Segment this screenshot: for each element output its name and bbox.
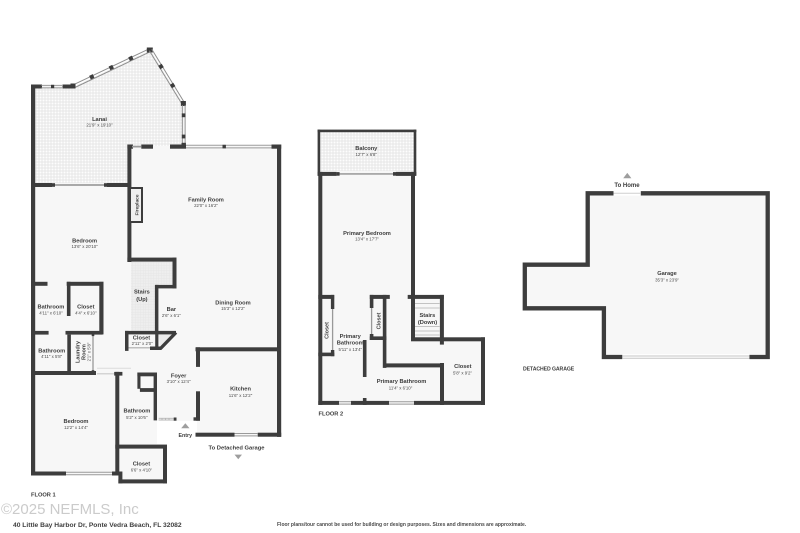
svg-text:21'9" x 19'10": 21'9" x 19'10"	[86, 123, 113, 128]
svg-text:4'11" x 6'10": 4'11" x 6'10"	[39, 310, 63, 315]
svg-text:Kitchen: Kitchen	[230, 387, 251, 393]
svg-text:15'3" x 12'2": 15'3" x 12'2"	[221, 306, 245, 311]
svg-text:FLOOR 2: FLOOR 2	[319, 412, 344, 418]
svg-text:To Detached Garage: To Detached Garage	[209, 446, 266, 452]
svg-text:Closet: Closet	[454, 364, 471, 370]
svg-text:6'6" x 4'10": 6'6" x 4'10"	[131, 468, 153, 473]
svg-text:Primary: Primary	[340, 334, 362, 340]
svg-text:11'6" x 12'2": 11'6" x 12'2"	[229, 393, 253, 398]
svg-text:Stairs: Stairs	[419, 313, 435, 319]
svg-text:5'11" x 13'4": 5'11" x 13'4"	[339, 347, 363, 352]
svg-text:Stairs: Stairs	[134, 290, 150, 296]
svg-text:2'6" x 6'1": 2'6" x 6'1"	[162, 313, 181, 318]
svg-text:13'4" x 17'7": 13'4" x 17'7"	[355, 237, 379, 242]
svg-text:(Up): (Up)	[136, 297, 147, 303]
svg-text:(Down): (Down)	[418, 320, 437, 326]
svg-text:5'2" x 10'6": 5'2" x 10'6"	[126, 415, 148, 420]
svg-text:Fireplace: Fireplace	[134, 194, 140, 215]
svg-text:12'2" x 14'4": 12'2" x 14'4"	[64, 425, 88, 430]
svg-text:Closet: Closet	[133, 462, 150, 468]
svg-text:Closet: Closet	[325, 322, 331, 339]
svg-text:Floor plans/tour cannot be use: Floor plans/tour cannot be used for buil…	[277, 522, 527, 528]
svg-text:Closet: Closet	[376, 312, 382, 329]
svg-text:2'11" x 2'0": 2'11" x 2'0"	[132, 341, 154, 346]
svg-text:2'1" x 5'8": 2'1" x 5'8"	[87, 342, 92, 361]
svg-text:Primary Bathroom: Primary Bathroom	[377, 379, 427, 385]
svg-text:40 Little Bay Harbor Dr, Ponte: 40 Little Bay Harbor Dr, Ponte Vedra Bea…	[13, 522, 182, 529]
svg-text:4'4" x 6'10": 4'4" x 6'10"	[75, 310, 97, 315]
svg-text:5'8" x 9'2": 5'8" x 9'2"	[453, 370, 472, 375]
svg-text:22'0" x 16'2": 22'0" x 16'2"	[194, 203, 218, 208]
svg-text:4'11" x 5'8": 4'11" x 5'8"	[41, 354, 63, 359]
svg-text:13'6" x 20'10": 13'6" x 20'10"	[71, 244, 98, 249]
svg-text:12'7" x 6'8": 12'7" x 6'8"	[355, 152, 377, 157]
svg-text:35'3" x 23'9": 35'3" x 23'9"	[655, 278, 679, 283]
svg-text:DETACHED GARAGE: DETACHED GARAGE	[523, 367, 575, 373]
svg-text:Entry: Entry	[179, 433, 193, 439]
svg-text:3'10" x 12'4": 3'10" x 12'4"	[167, 379, 191, 384]
svg-text:To Home: To Home	[614, 183, 640, 189]
svg-text:Bathroom: Bathroom	[123, 409, 150, 415]
svg-text:Bathroom: Bathroom	[337, 341, 364, 347]
svg-text:11'4" x 6'10": 11'4" x 6'10"	[389, 385, 413, 390]
svg-text:FLOOR 1: FLOOR 1	[31, 493, 56, 499]
svg-text:Garage: Garage	[657, 271, 677, 277]
svg-text:©2025 NEFMLS, Inc: ©2025 NEFMLS, Inc	[1, 501, 139, 518]
